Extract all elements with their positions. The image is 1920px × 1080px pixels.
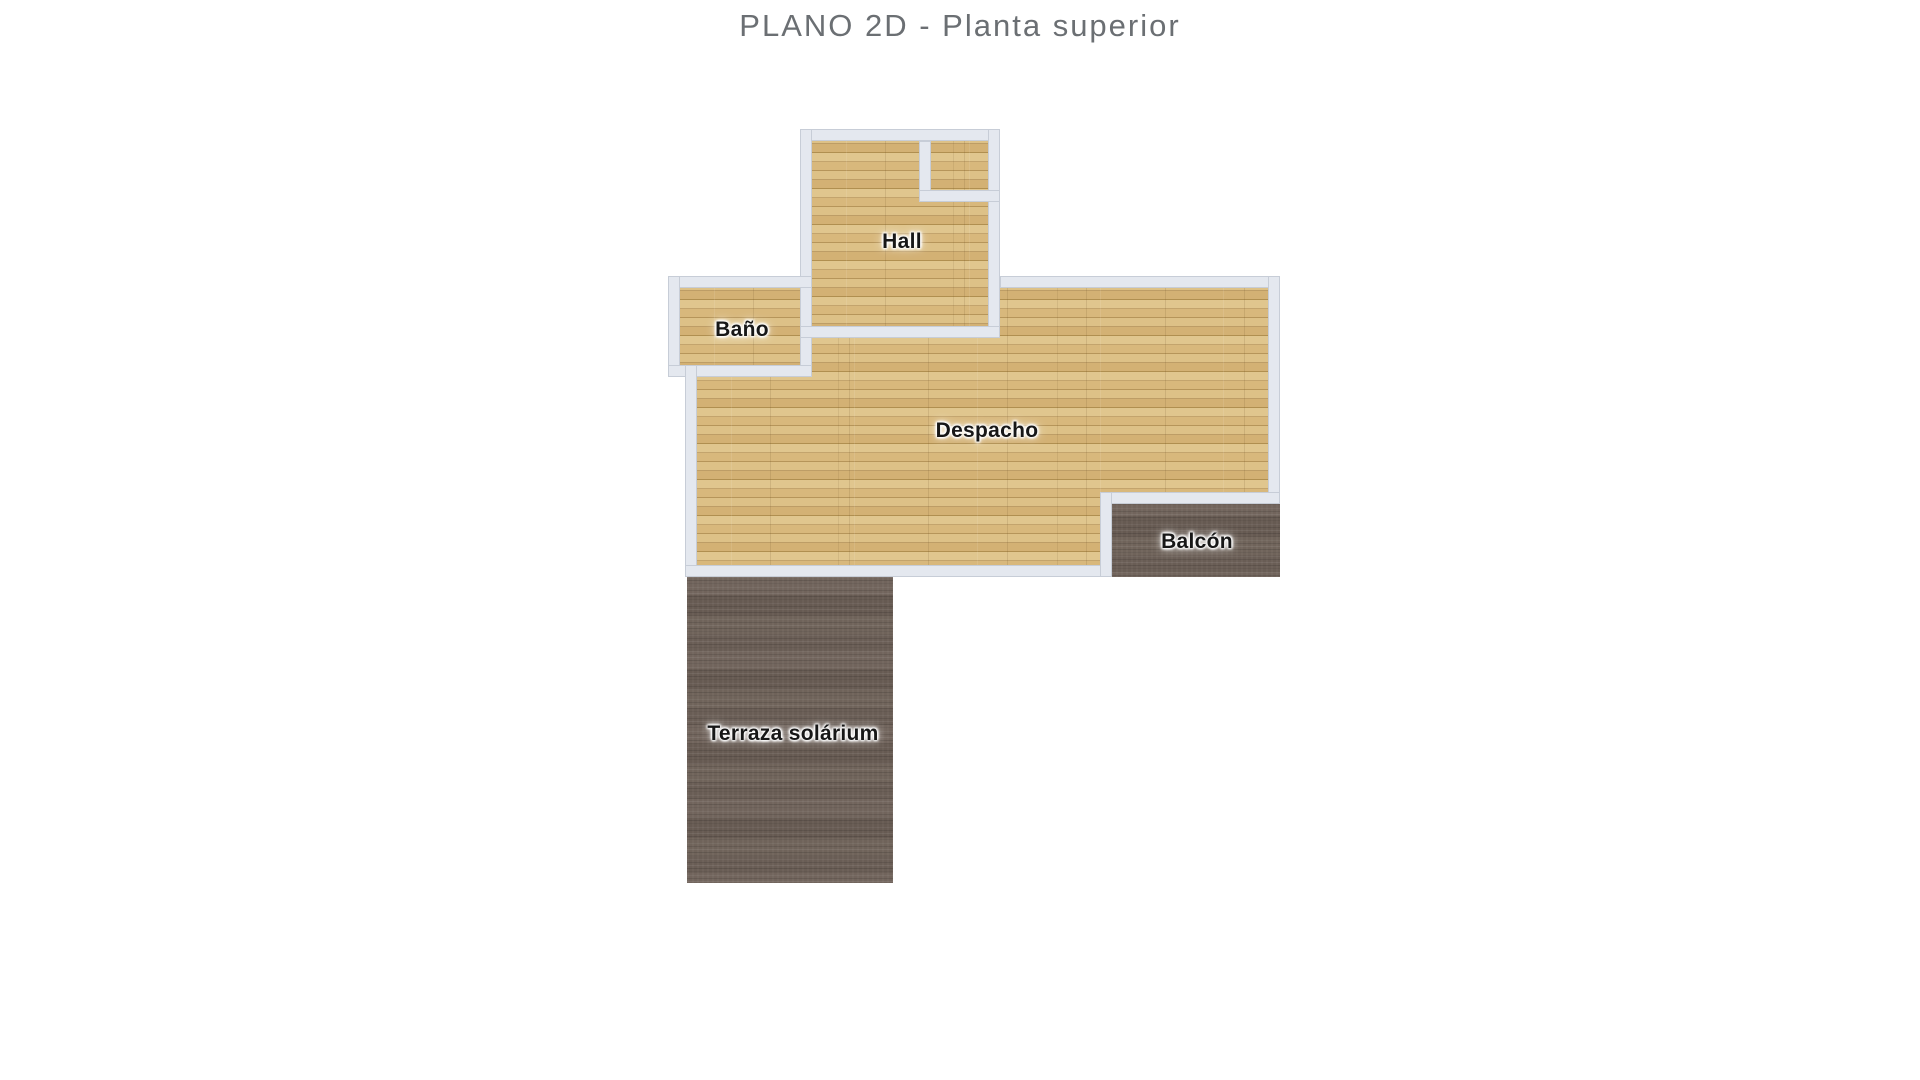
wall-hall-top bbox=[800, 129, 1000, 141]
wall-closet-bottom bbox=[919, 190, 1000, 202]
wall-despacho-right bbox=[1268, 276, 1280, 504]
wall-bano-left bbox=[668, 276, 680, 377]
room-label-terraza: Terraza solárium bbox=[707, 722, 878, 746]
wall-despacho-bottom bbox=[685, 565, 1110, 577]
wall-balcon-left bbox=[1100, 492, 1112, 577]
wall-bano-top bbox=[668, 276, 812, 288]
plan-canvas: PLANO 2D - Planta superior Hall Baño Des… bbox=[0, 0, 1920, 1080]
room-label-hall: Hall bbox=[882, 230, 922, 254]
wall-despacho-top bbox=[1000, 276, 1280, 288]
plan-title: PLANO 2D - Planta superior bbox=[0, 8, 1920, 44]
wall-hall-left bbox=[800, 129, 812, 377]
wall-despacho-left bbox=[685, 365, 697, 577]
room-label-despacho: Despacho bbox=[936, 419, 1039, 443]
wall-balcon-top bbox=[1100, 492, 1280, 504]
room-label-bano: Baño bbox=[715, 318, 769, 342]
wall-hall-bottom bbox=[800, 326, 1000, 338]
wall-hall-right bbox=[988, 129, 1000, 338]
room-label-balcon: Balcón bbox=[1161, 530, 1233, 554]
